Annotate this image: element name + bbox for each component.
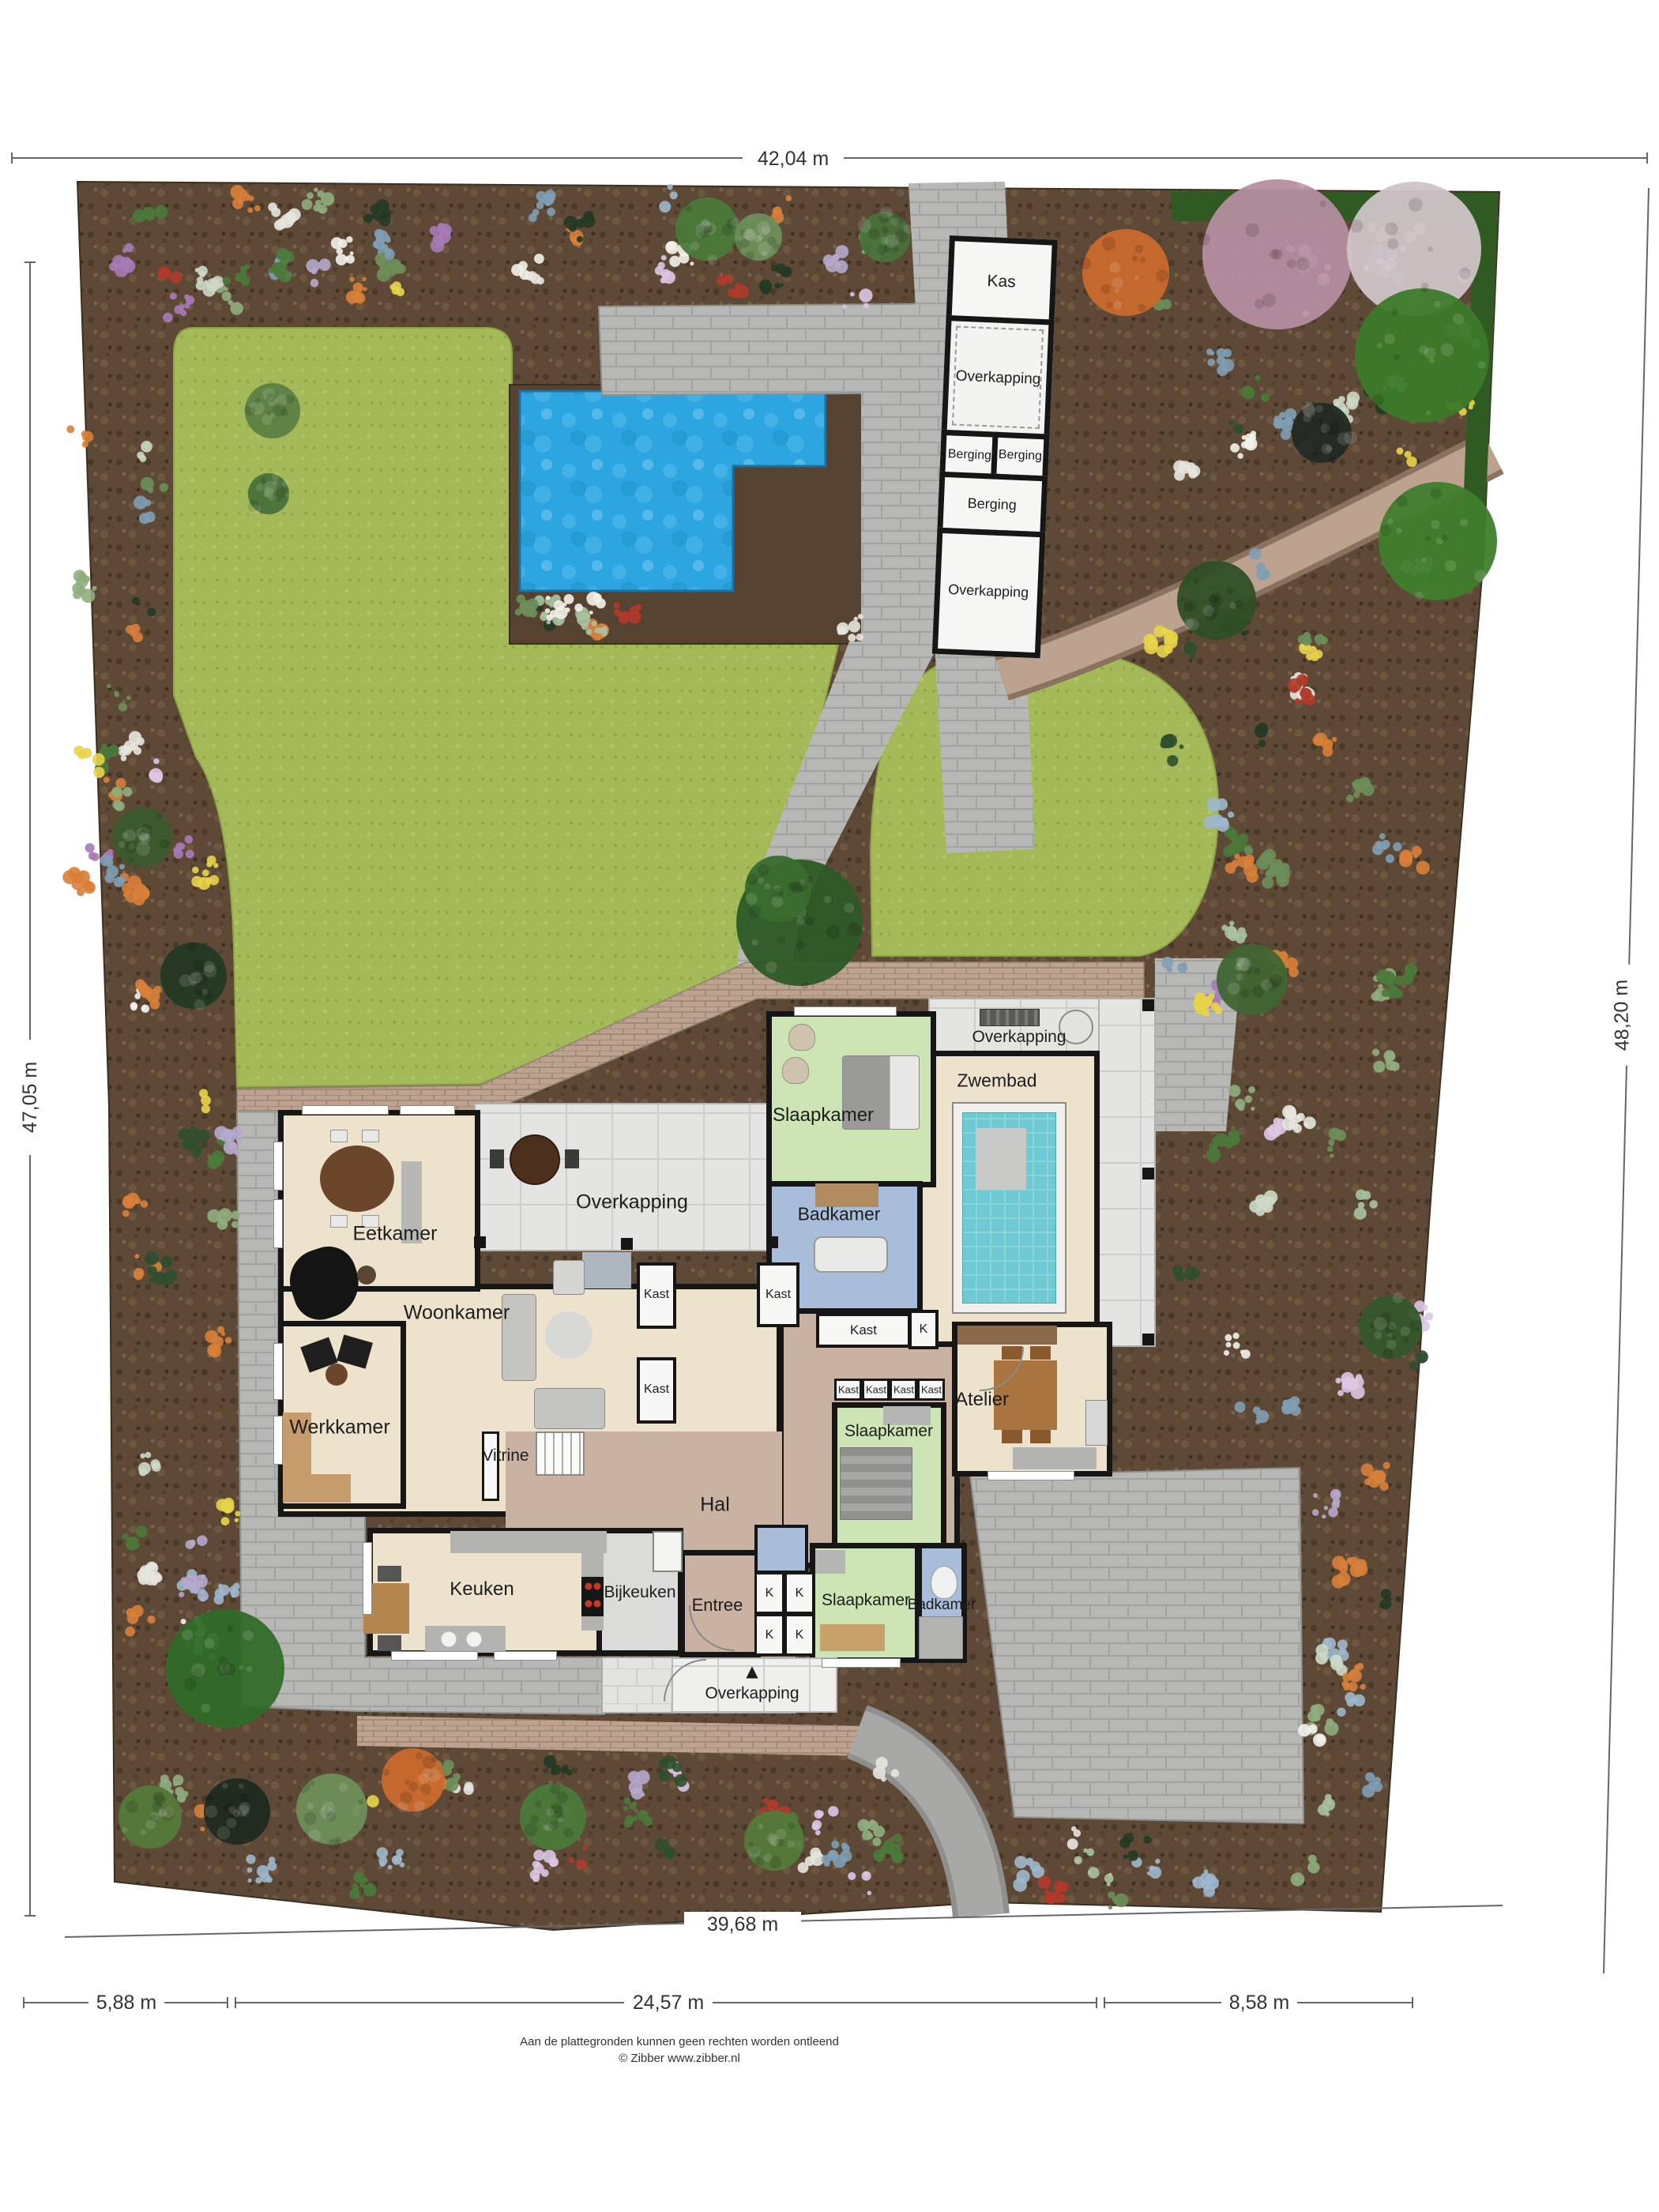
zwembad-label: Zwembad xyxy=(957,1070,1037,1092)
patio-post xyxy=(474,1236,486,1248)
eetkamer-label: Eetkamer xyxy=(353,1223,438,1246)
atelier-sink xyxy=(1085,1400,1108,1446)
badkamer-noord-label: Badkamer xyxy=(798,1204,881,1225)
window xyxy=(822,1658,901,1668)
terrace-post xyxy=(1142,1168,1154,1179)
sofa-small xyxy=(534,1388,605,1429)
kast-rij-1-label: Kast xyxy=(838,1384,859,1396)
stairs xyxy=(536,1431,585,1476)
dining-table xyxy=(320,1145,394,1212)
kast-wand-2-label: Kast xyxy=(644,1382,669,1397)
tv-mat xyxy=(582,1252,631,1288)
window xyxy=(273,1416,283,1465)
kast-rij-4-label: Kast xyxy=(921,1384,942,1396)
lounge-chair xyxy=(782,1057,809,1084)
stove xyxy=(581,1577,604,1616)
atelier-chair xyxy=(1030,1346,1051,1360)
berging-left-label: Berging xyxy=(947,447,991,463)
kast-rij-3-label: Kast xyxy=(893,1384,914,1396)
desk-l xyxy=(283,1474,351,1503)
k-kast-4-label: K xyxy=(796,1628,804,1642)
slaapkamer-midden-label: Slaapkamer xyxy=(845,1422,933,1441)
kast-wand-1-label: Kast xyxy=(644,1288,669,1302)
overkapping-top-label: Overkapping xyxy=(955,367,1041,388)
patio-post xyxy=(766,1236,778,1248)
overkapping-entree-label: Overkapping xyxy=(705,1684,799,1703)
side-table xyxy=(325,1364,348,1386)
dining-chair xyxy=(330,1215,348,1228)
patio-chair xyxy=(490,1149,504,1168)
entree-label: Entree xyxy=(692,1595,743,1616)
slaapkamer-noord-label: Slaapkamer xyxy=(773,1104,874,1127)
copyright-line1: Aan de plattegronden kunnen geen rechten… xyxy=(442,2033,916,2050)
kas-label: Kas xyxy=(987,272,1016,292)
slaapkamer-zuid-label: Slaapkamer xyxy=(822,1591,910,1610)
pool-mat xyxy=(976,1128,1026,1190)
kitchen-sink xyxy=(425,1626,506,1653)
kast-gang-label: Kast xyxy=(850,1322,877,1338)
terrace-post xyxy=(1142,999,1154,1011)
chair-south xyxy=(815,1550,845,1574)
badkamer-zuid-label: Badkamer xyxy=(908,1597,976,1614)
bed-middle xyxy=(840,1447,912,1520)
window xyxy=(400,1105,455,1115)
kast-rij-2-label: Kast xyxy=(866,1384,886,1396)
dim-bottom-1: 5,88 m xyxy=(96,1992,156,2014)
lounge-chair xyxy=(788,1024,815,1051)
window xyxy=(273,1199,283,1248)
hal-label: Hal xyxy=(700,1494,730,1517)
terrace-southeast xyxy=(970,1468,1303,1823)
dim-bottom-3: 8,58 m xyxy=(1229,1992,1289,2014)
toilet xyxy=(931,1566,957,1599)
atelier-label: Atelier xyxy=(955,1389,1009,1411)
window xyxy=(302,1105,389,1115)
north-arrow-icon: ▲ xyxy=(742,1660,762,1684)
armchair xyxy=(553,1260,585,1295)
window xyxy=(494,1651,557,1661)
dim-top-label: 42,04 m xyxy=(758,148,829,170)
bathtub xyxy=(814,1236,888,1273)
shower xyxy=(919,1616,963,1659)
window xyxy=(987,1471,1074,1480)
bijkeuken-label: Bijkeuken xyxy=(604,1583,675,1602)
terrace-post xyxy=(1142,1334,1154,1345)
window xyxy=(273,1142,283,1191)
kitchen-chair xyxy=(378,1566,401,1582)
piano-stool xyxy=(357,1266,376,1285)
berging-right-label: Berging xyxy=(998,448,1042,464)
dim-diag-label: 39,68 m xyxy=(707,1913,778,1935)
dim-right-label: 48,20 m xyxy=(1609,980,1633,1051)
k-kast-2-label: K xyxy=(796,1586,804,1601)
overkapping-zwembad-label: Overkapping xyxy=(972,1028,1066,1047)
window xyxy=(391,1651,478,1661)
dim-bottom-2: 24,57 m xyxy=(633,1992,704,2014)
atelier-chair xyxy=(1030,1430,1051,1443)
berging-large-label: Berging xyxy=(967,495,1017,514)
atelier-shelf xyxy=(957,1326,1057,1345)
vitrine-label: Vitrine xyxy=(482,1446,529,1465)
room-wc xyxy=(754,1525,808,1574)
werkkamer-label: Werkkamer xyxy=(289,1416,389,1439)
rug-round xyxy=(545,1311,592,1359)
washing-machine xyxy=(653,1531,683,1572)
k-kast-1-label: K xyxy=(766,1586,774,1601)
lawn-east xyxy=(871,645,1218,956)
bed-south xyxy=(820,1624,885,1651)
vitrine-case xyxy=(482,1431,499,1501)
dining-chair xyxy=(330,1130,348,1142)
outbuildings-strip: Kas Overkapping Berging Berging Berging … xyxy=(932,235,1058,658)
patio-table xyxy=(510,1134,560,1185)
kast-hal-label: Kast xyxy=(766,1288,791,1302)
window xyxy=(363,1542,372,1615)
kitchen-chair xyxy=(378,1635,401,1651)
patio-post xyxy=(621,1238,633,1250)
patio-chair xyxy=(565,1149,579,1168)
atelier-counter xyxy=(1013,1447,1097,1469)
dim-left-label: 47,05 m xyxy=(19,1062,41,1133)
window xyxy=(273,1343,283,1400)
window xyxy=(794,1006,897,1016)
k-gang-label: K xyxy=(920,1322,928,1337)
copyright-line2: © Zibber www.zibber.nl xyxy=(442,2050,916,2067)
copyright-note: Aan de plattegronden kunnen geen rechten… xyxy=(442,2033,916,2067)
atelier-chair xyxy=(1002,1430,1022,1443)
overkapping-patio-label: Overkapping xyxy=(576,1191,688,1214)
keuken-label: Keuken xyxy=(450,1578,513,1601)
garden-bench xyxy=(980,1009,1040,1026)
woonkamer-label: Woonkamer xyxy=(404,1302,510,1325)
overkapping-bottom-label: Overkapping xyxy=(948,581,1029,601)
dining-chair xyxy=(362,1130,379,1142)
k-kast-3-label: K xyxy=(766,1628,774,1642)
floorplan-page: 42,04 m 47,05 m 48,20 m 39,68 m 5,88 m 2… xyxy=(0,0,1659,2212)
